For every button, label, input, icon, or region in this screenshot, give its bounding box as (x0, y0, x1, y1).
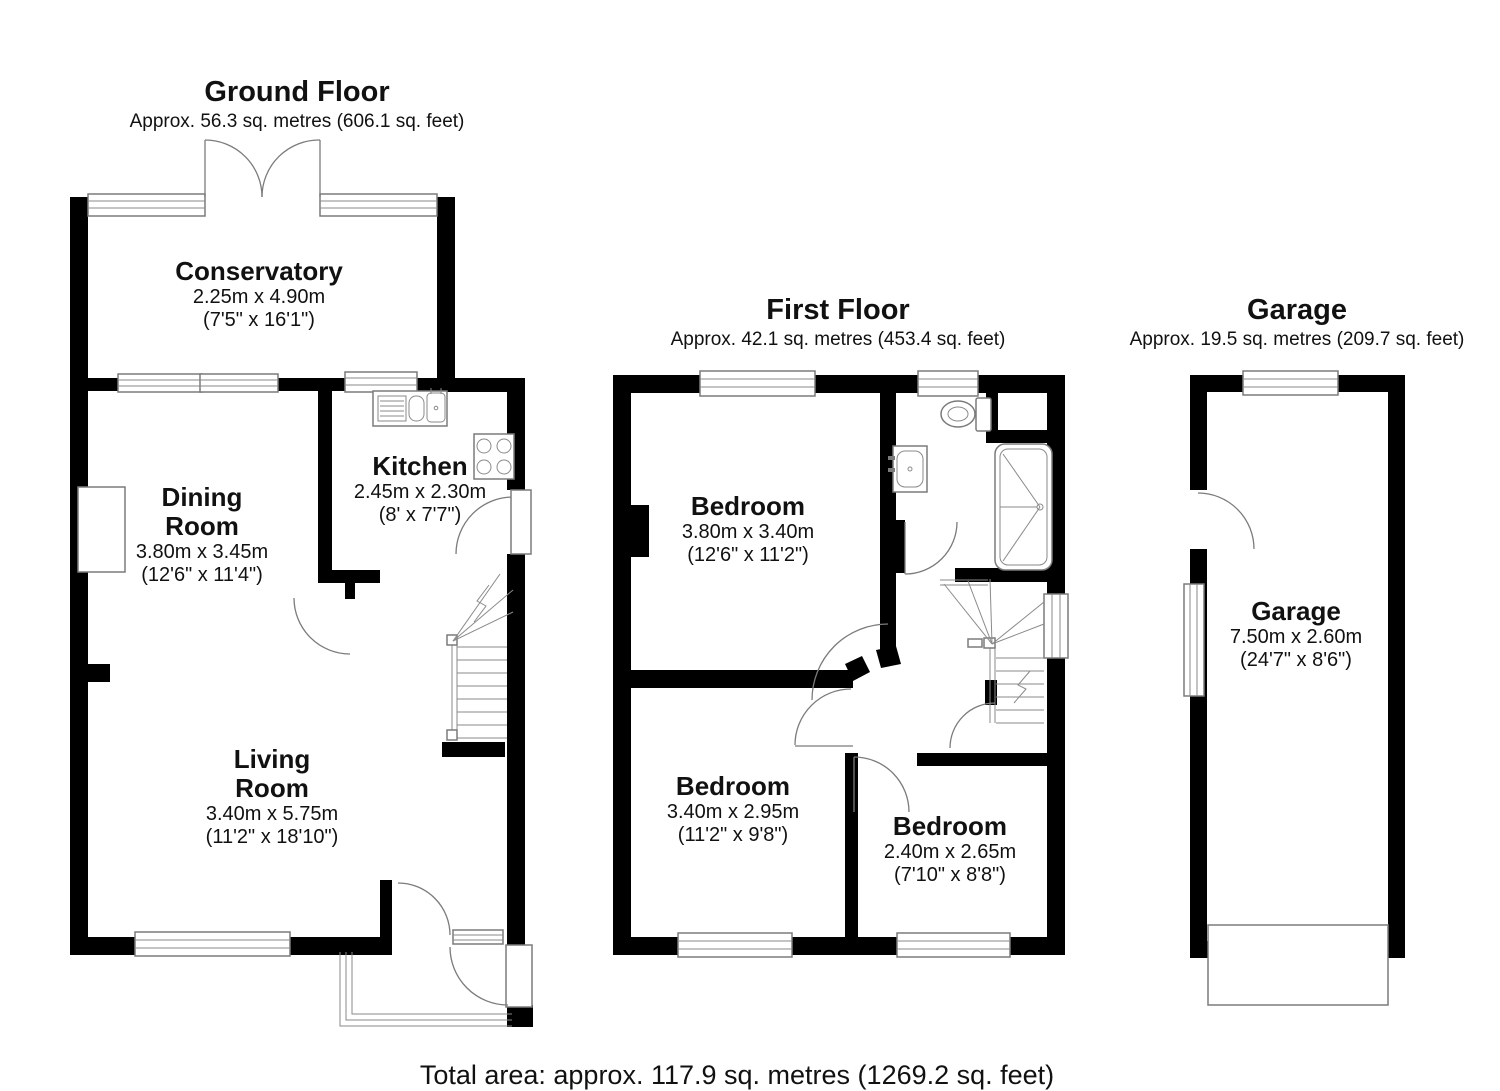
floorplan-page: Ground Floor Approx. 56.3 sq. metres (60… (0, 0, 1500, 1091)
bedroom1-metric: 3.80m x 3.40m (682, 521, 814, 543)
conservatory-metric: 2.25m x 4.90m (175, 286, 343, 308)
room-label-bedroom3: Bedroom 2.40m x 2.65m (7'10" x 8'8") (884, 812, 1016, 886)
garage-side-door-arc (1198, 493, 1254, 549)
basin (888, 446, 927, 492)
living-room-name-line1: Living (206, 745, 339, 774)
room-label-conservatory: Conservatory 2.25m x 4.90m (7'5" x 16'1"… (175, 257, 343, 331)
bedroom3-imperial: (7'10" x 8'8") (884, 864, 1016, 886)
room-label-kitchen: Kitchen 2.45m x 2.30m (8' x 7'7") (354, 452, 486, 526)
front-door-arc (398, 883, 450, 935)
dining-room-metric: 3.80m x 3.45m (136, 541, 268, 563)
garage-subtitle: Approx. 19.5 sq. metres (209.7 sq. feet) (1130, 327, 1465, 353)
first-floor-title: First Floor (671, 294, 1006, 327)
french-doors (205, 140, 320, 197)
conservatory-imperial: (7'5" x 16'1") (175, 309, 343, 331)
first-floor-header: First Floor Approx. 42.1 sq. metres (453… (671, 294, 1006, 353)
dining-room-name-line2: Room (136, 512, 268, 541)
ground-stairs (447, 574, 513, 740)
ground-floor-subtitle: Approx. 56.3 sq. metres (606.1 sq. feet) (130, 109, 465, 135)
kitchen-sink (373, 388, 447, 426)
room-label-living-room: Living Room 3.40m x 5.75m (11'2" x 18'10… (206, 745, 339, 848)
bedroom2-imperial: (11'2" x 9'8") (667, 824, 799, 846)
garage-plan (1184, 371, 1405, 1005)
garage-header: Garage Approx. 19.5 sq. metres (209.7 sq… (1130, 294, 1465, 353)
room-label-bedroom2: Bedroom 3.40m x 2.95m (11'2" x 9'8") (667, 772, 799, 846)
garage-room-name: Garage (1230, 597, 1362, 626)
living-room-imperial: (11'2" x 18'10") (206, 826, 339, 848)
kitchen-metric: 2.45m x 2.30m (354, 481, 486, 503)
dining-door-arc (294, 598, 350, 654)
garage-door (1208, 925, 1388, 1005)
porch (340, 945, 532, 1026)
dining-room-name-line1: Dining (136, 483, 268, 512)
living-room-name-line2: Room (206, 774, 339, 803)
dining-recess (78, 487, 125, 572)
kitchen-imperial: (8' x 7'7") (354, 504, 486, 526)
room-label-bedroom1: Bedroom 3.80m x 3.40m (12'6" x 11'2") (682, 492, 814, 566)
first-floor-subtitle: Approx. 42.1 sq. metres (453.4 sq. feet) (671, 327, 1006, 353)
conservatory-name: Conservatory (175, 257, 343, 286)
living-room-metric: 3.40m x 5.75m (206, 803, 339, 825)
bedroom2-metric: 3.40m x 2.95m (667, 801, 799, 823)
bedroom2-name: Bedroom (667, 772, 799, 801)
garage-title: Garage (1130, 294, 1465, 327)
bathtub (995, 444, 1052, 570)
room-label-dining-room: Dining Room 3.80m x 3.45m (12'6" x 11'4"… (136, 483, 268, 586)
dining-room-imperial: (12'6" x 11'4") (136, 564, 268, 586)
room-label-garage: Garage 7.50m x 2.60m (24'7" x 8'6") (1230, 597, 1362, 671)
ground-floor-title: Ground Floor (130, 76, 465, 109)
toilet (941, 398, 991, 431)
garage-room-imperial: (24'7" x 8'6") (1230, 649, 1362, 671)
bedroom3-metric: 2.40m x 2.65m (884, 841, 1016, 863)
garage-room-metric: 7.50m x 2.60m (1230, 626, 1362, 648)
bedroom3-name: Bedroom (884, 812, 1016, 841)
ground-floor-header: Ground Floor Approx. 56.3 sq. metres (60… (130, 76, 465, 135)
kitchen-name: Kitchen (354, 452, 486, 481)
bedroom1-imperial: (12'6" x 11'2") (682, 544, 814, 566)
bedroom1-name: Bedroom (682, 492, 814, 521)
total-area-text: Total area: approx. 117.9 sq. metres (12… (420, 1060, 1054, 1091)
